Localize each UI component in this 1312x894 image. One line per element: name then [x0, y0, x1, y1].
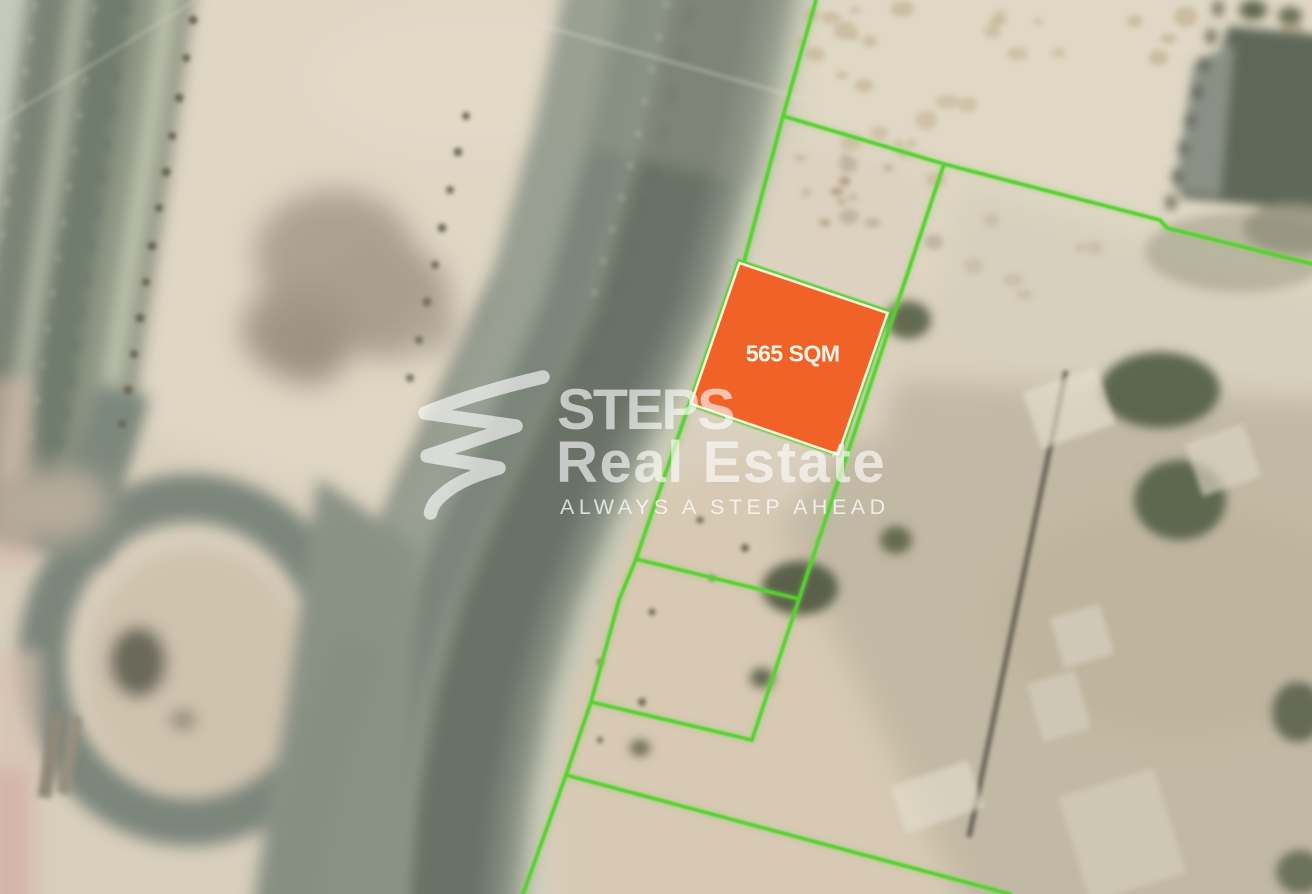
- svg-text:Real Estate: Real Estate: [556, 430, 886, 495]
- svg-text:ALWAYS A STEP AHEAD: ALWAYS A STEP AHEAD: [560, 495, 890, 519]
- svg-text:565 SQM: 565 SQM: [746, 341, 840, 367]
